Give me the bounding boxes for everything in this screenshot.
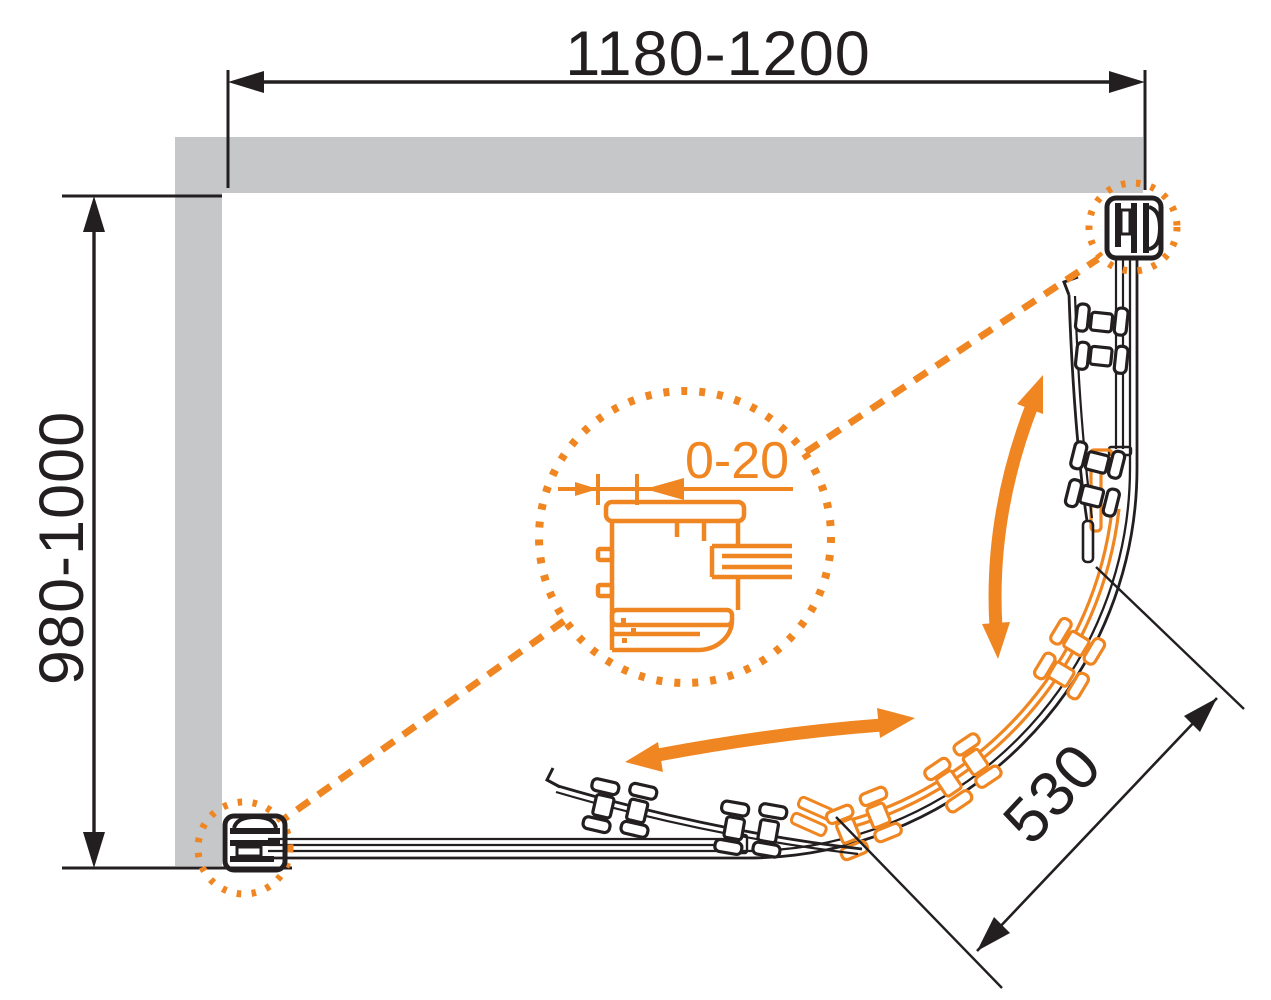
callout-leader-bottom (284, 621, 564, 819)
shower-enclosure-plan-drawing: 1180-1200 980-1000 (0, 0, 1271, 1000)
width-dimension-label: 1180-1200 (565, 19, 871, 89)
arrowhead-left (228, 71, 264, 93)
technical-drawing-page: 1180-1200 980-1000 (0, 0, 1271, 1000)
wall-left (175, 193, 222, 866)
extension-line-lower (836, 817, 1002, 988)
arrowhead-right (1109, 71, 1145, 93)
callout-leader-top (806, 259, 1098, 452)
door-handle (547, 768, 560, 787)
detail-view-profile: 0-20 (558, 432, 793, 650)
glass-track (268, 258, 1137, 858)
depth-dimension: 980-1000 (27, 196, 292, 868)
arrowhead-bottom (83, 832, 105, 868)
depth-dimension-label: 980-1000 (27, 411, 97, 685)
sliding-door-upper (1061, 277, 1133, 562)
door-roller (582, 774, 658, 842)
swing-arrow-bottom-shaft (658, 725, 882, 755)
swing-arrow-right-head-down (982, 622, 1010, 659)
extension-line-upper (1096, 567, 1244, 709)
arrowhead-top (83, 196, 105, 232)
swing-arrow-right-head-up (1017, 375, 1043, 414)
wall-top (175, 137, 1143, 193)
profile-cross-section (598, 502, 792, 650)
swing-arrow-bottom-head-right (877, 708, 915, 738)
door-opening-label: 530 (990, 730, 1115, 857)
door-roller (1061, 441, 1130, 517)
adjustment-label: 0-20 (685, 432, 789, 490)
door-opening-dimension: 530 (836, 567, 1244, 988)
wall-profile-bottom-left (225, 816, 285, 870)
wall-profile-top-right (1107, 198, 1161, 258)
swing-arrow-bottom-head-left (625, 742, 663, 772)
swing-arrow-right-shaft (995, 403, 1033, 628)
outer-track-arc (268, 258, 1137, 858)
